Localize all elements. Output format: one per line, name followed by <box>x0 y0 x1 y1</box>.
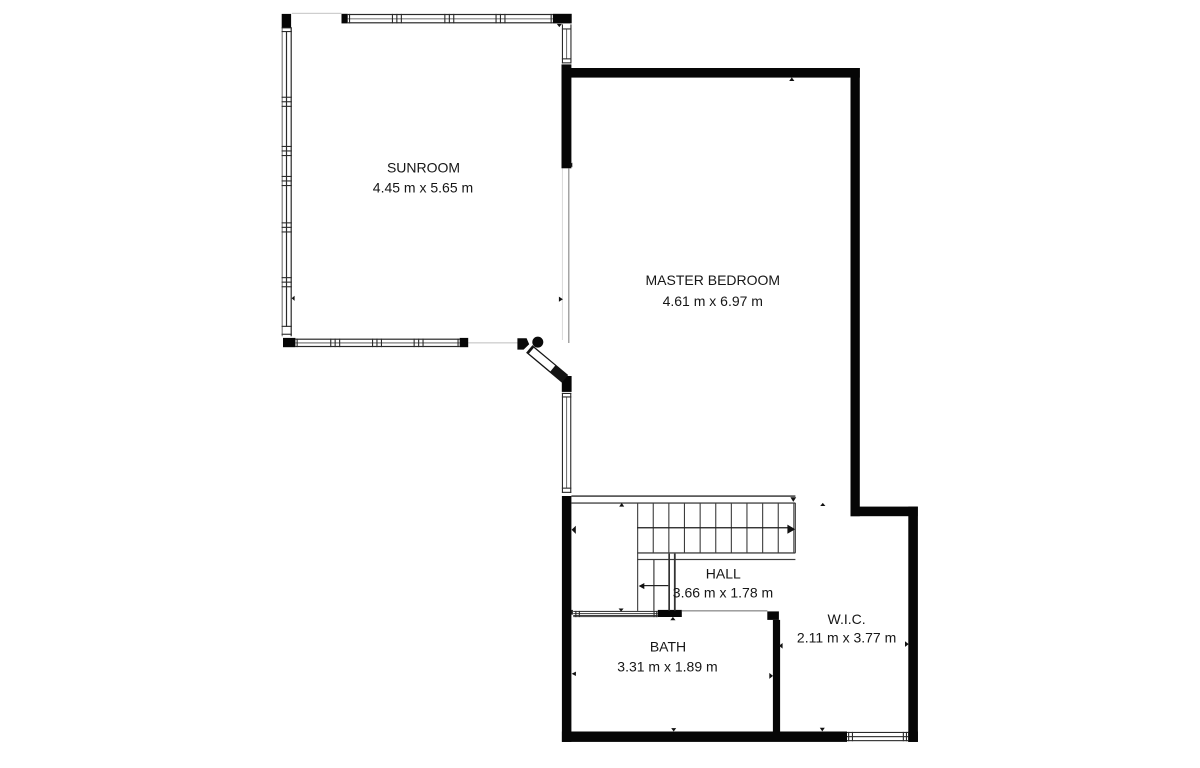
svg-text:3.31 m x 1.89 m: 3.31 m x 1.89 m <box>617 658 717 674</box>
svg-text:W.I.C.: W.I.C. <box>828 611 866 627</box>
svg-text:4.61 m x 6.97 m: 4.61 m x 6.97 m <box>663 293 763 309</box>
svg-text:HALL: HALL <box>706 565 741 581</box>
svg-text:MASTER BEDROOM: MASTER BEDROOM <box>646 272 781 288</box>
svg-text:4.45 m x 5.65 m: 4.45 m x 5.65 m <box>373 179 473 195</box>
svg-text:2.11 m x 3.77 m: 2.11 m x 3.77 m <box>797 630 896 646</box>
svg-text:SUNROOM: SUNROOM <box>387 159 460 175</box>
svg-text:3.66 m x 1.78 m: 3.66 m x 1.78 m <box>673 585 773 601</box>
svg-text:BATH: BATH <box>650 639 686 655</box>
